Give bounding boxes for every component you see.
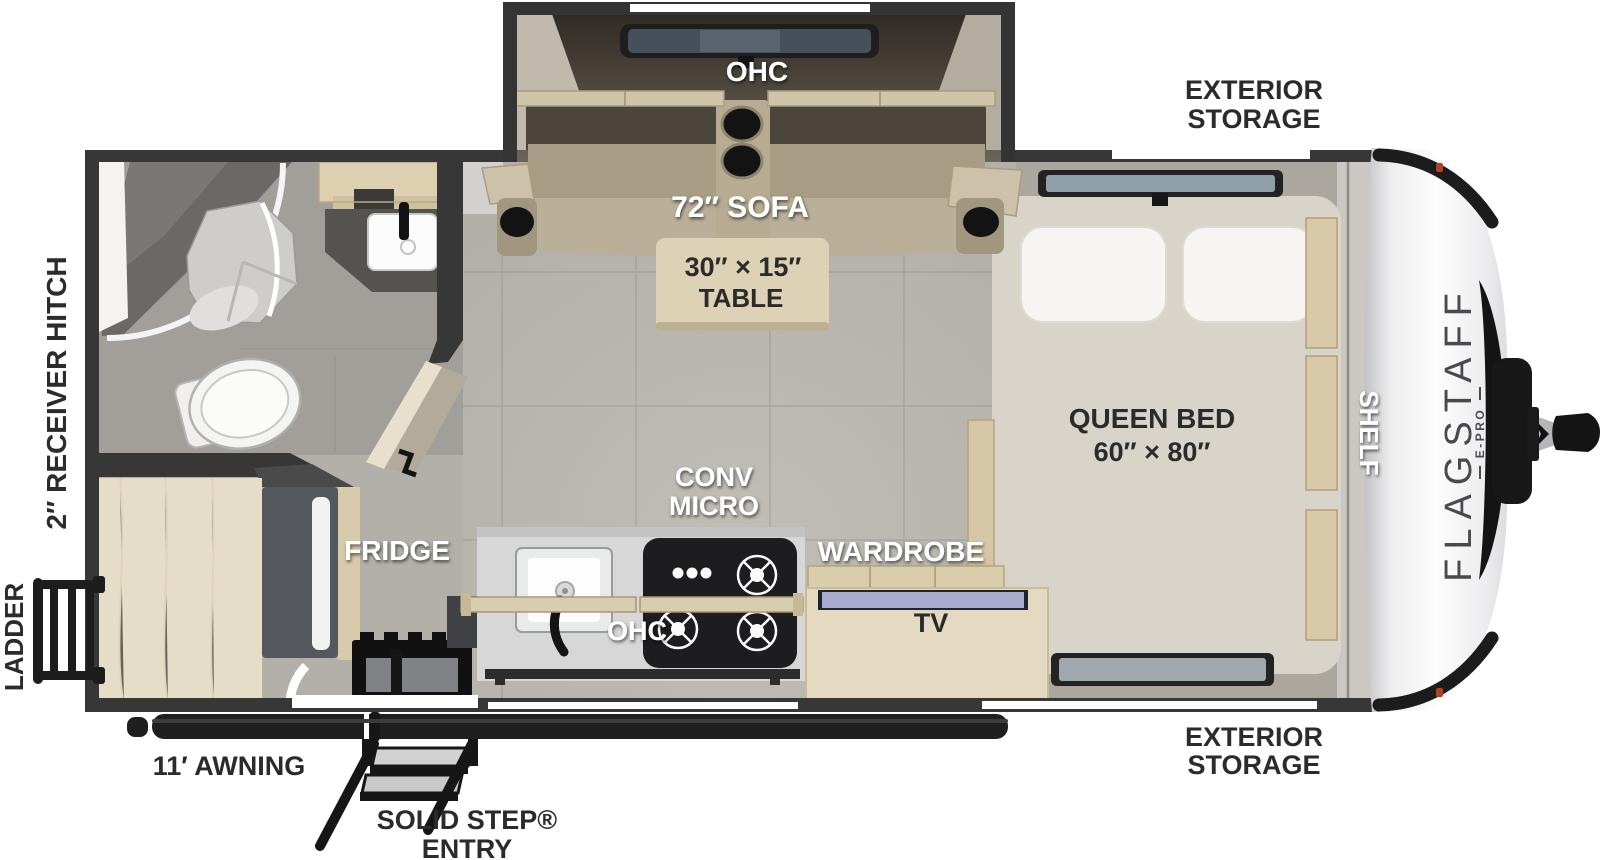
svg-text:TV: TV	[914, 608, 949, 638]
svg-text:STORAGE: STORAGE	[1187, 750, 1320, 780]
svg-text:WARDROBE: WARDROBE	[818, 536, 984, 567]
svg-text:LADDER: LADDER	[0, 583, 29, 692]
svg-text:OHC: OHC	[607, 616, 667, 646]
svg-text:SHELF: SHELF	[1354, 390, 1384, 475]
svg-text:EXTERIOR: EXTERIOR	[1185, 722, 1323, 752]
svg-text:QUEEN BED: QUEEN BED	[1069, 403, 1235, 434]
svg-text:60″ × 80″: 60″ × 80″	[1094, 437, 1211, 467]
svg-text:30″ × 15″: 30″ × 15″	[685, 252, 802, 282]
svg-text:2″ RECEIVER HITCH: 2″ RECEIVER HITCH	[41, 256, 72, 529]
svg-text:EXTERIOR: EXTERIOR	[1185, 75, 1323, 105]
svg-text:72″ SOFA: 72″ SOFA	[671, 191, 809, 224]
svg-text:STORAGE: STORAGE	[1187, 104, 1320, 134]
svg-text:CONV: CONV	[675, 462, 753, 492]
svg-text:OHC: OHC	[726, 56, 788, 87]
svg-text:SOLID STEP®: SOLID STEP®	[377, 805, 558, 835]
svg-text:MICRO: MICRO	[669, 491, 759, 521]
svg-text:FRIDGE: FRIDGE	[344, 535, 450, 566]
svg-text:TABLE: TABLE	[699, 283, 784, 313]
svg-text:E-PRO: E-PRO	[1473, 408, 1487, 459]
svg-text:ENTRY: ENTRY	[422, 834, 513, 860]
svg-text:11′ AWNING: 11′ AWNING	[153, 751, 306, 781]
